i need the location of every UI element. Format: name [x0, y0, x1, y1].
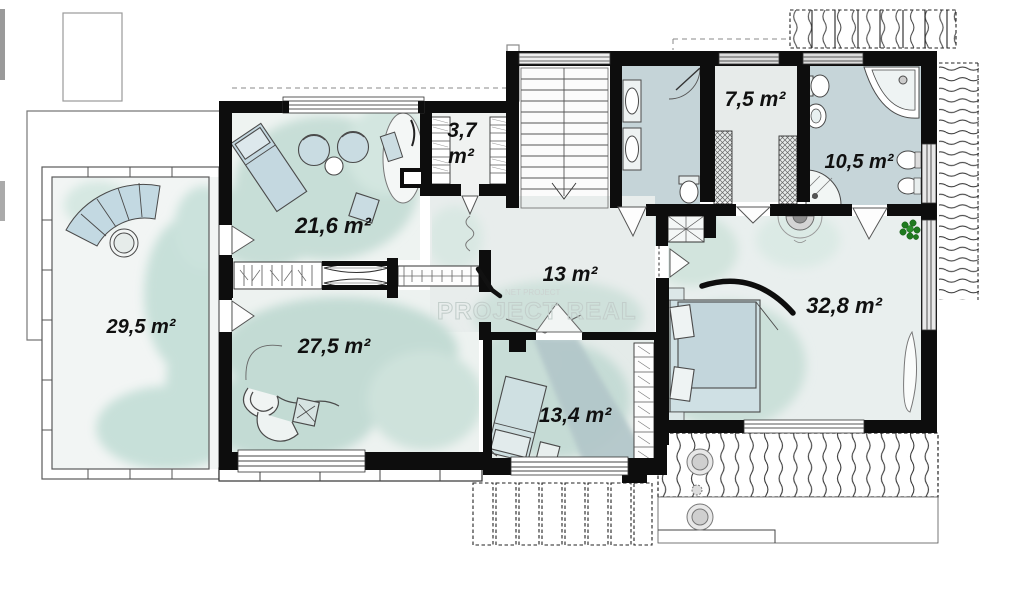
svg-text:27,5 m²: 27,5 m² [297, 335, 371, 358]
svg-text:m²: m² [448, 145, 475, 168]
svg-text:21,6 m²: 21,6 m² [294, 213, 371, 238]
svg-text:3,7: 3,7 [447, 119, 478, 142]
svg-text:10,5 m²: 10,5 m² [825, 151, 895, 173]
svg-text:32,8 m²: 32,8 m² [806, 293, 882, 318]
svg-text:13 m²: 13 m² [543, 263, 599, 286]
svg-text:13,4 m²: 13,4 m² [539, 404, 612, 427]
svg-text:29,5 m²: 29,5 m² [106, 316, 177, 338]
svg-text:NET PROJECT: NET PROJECT [505, 288, 561, 297]
svg-text:7,5 m²: 7,5 m² [725, 88, 787, 111]
svg-text:PROJECT REAL: PROJECT REAL [437, 298, 637, 325]
